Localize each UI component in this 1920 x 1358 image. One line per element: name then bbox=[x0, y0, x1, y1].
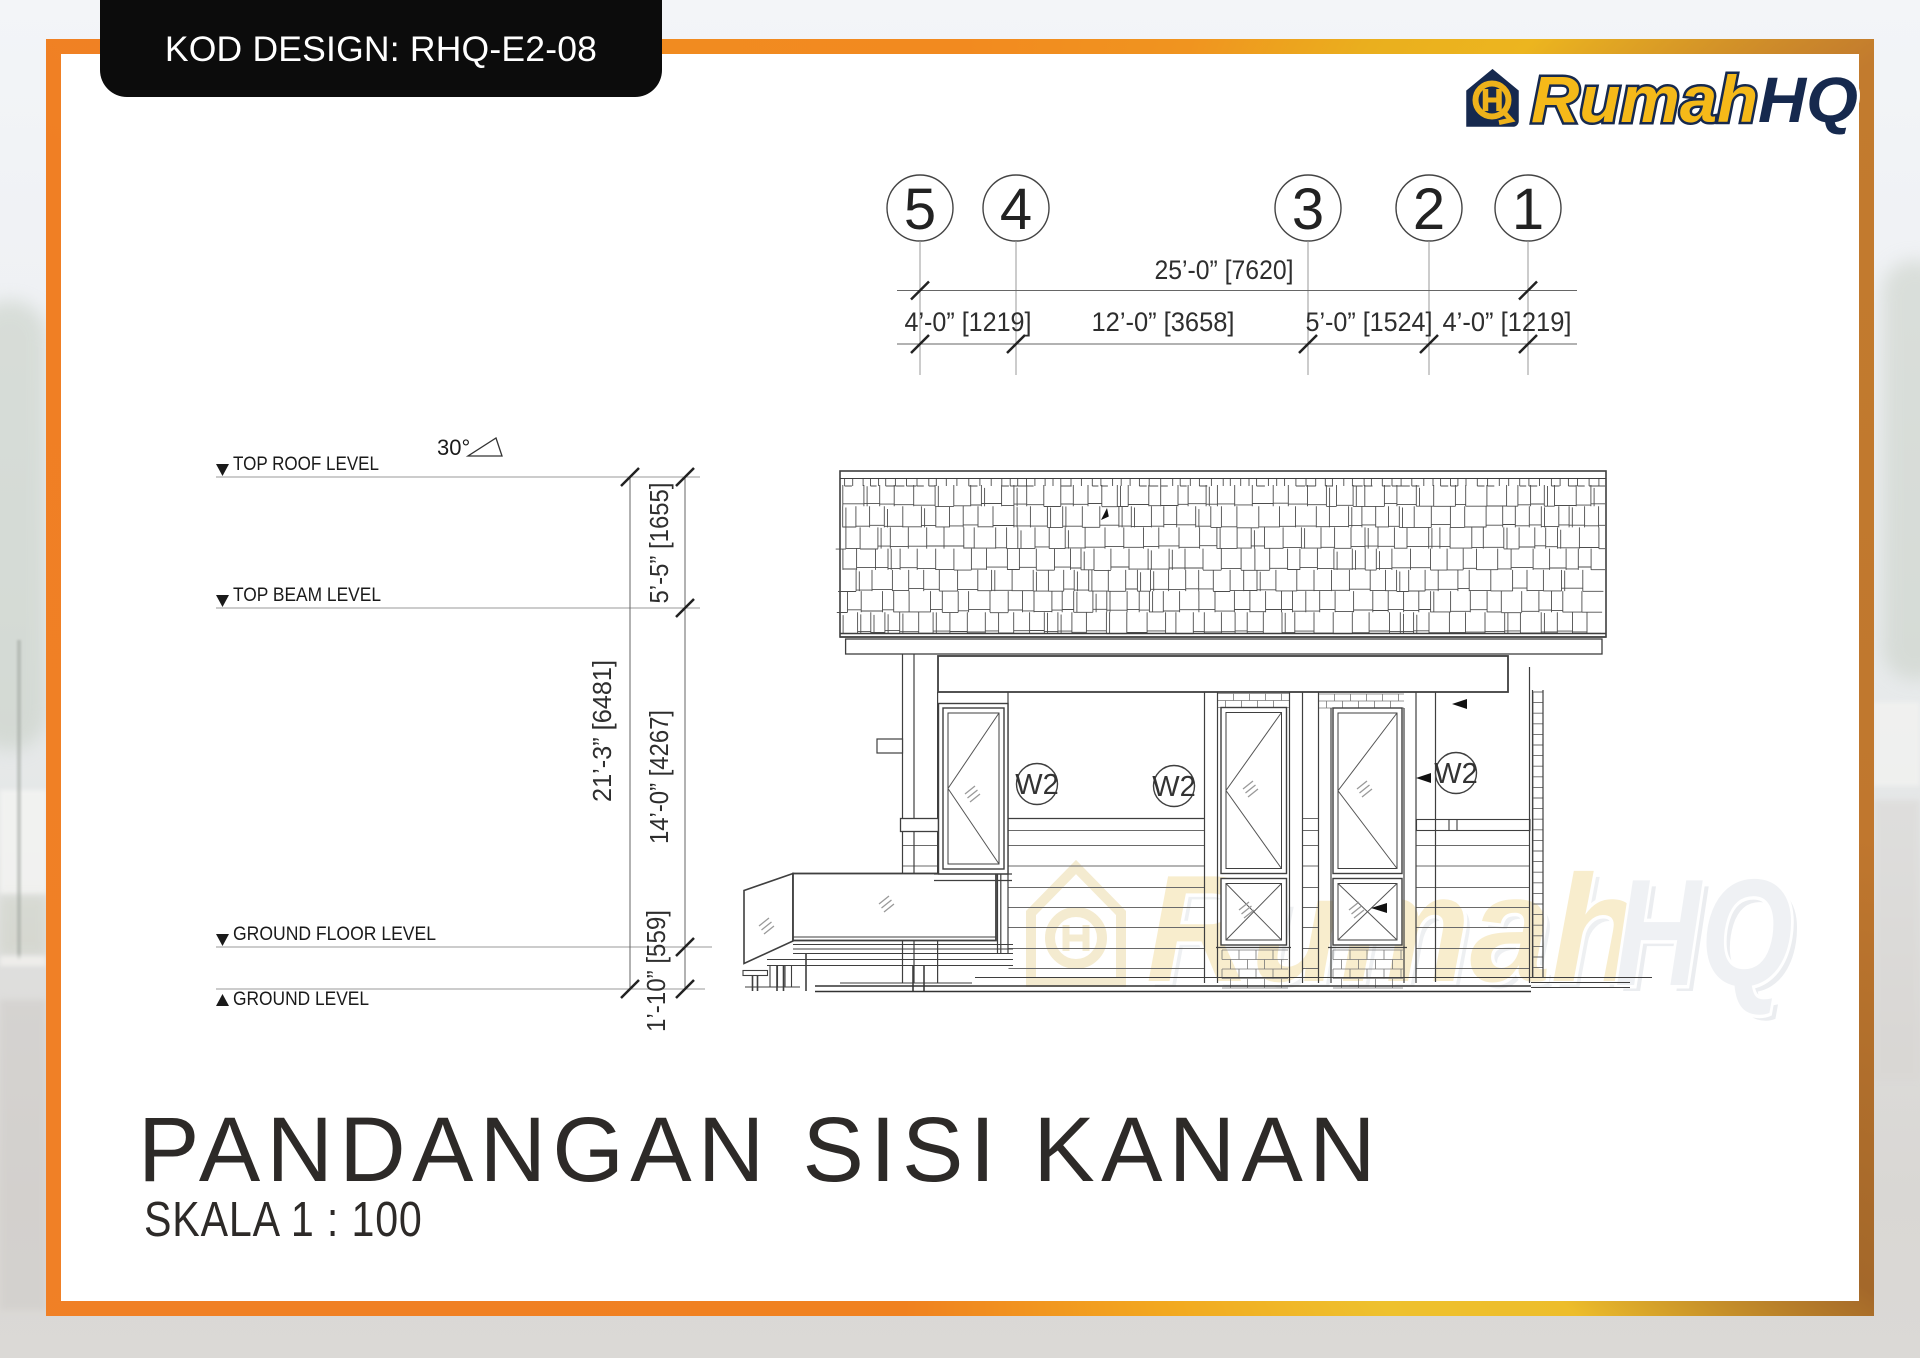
svg-text:5’-5” [1655]: 5’-5” [1655] bbox=[644, 483, 674, 604]
svg-text:W2: W2 bbox=[1015, 769, 1059, 801]
svg-text:GROUND LEVEL: GROUND LEVEL bbox=[233, 989, 369, 1010]
svg-text:21’-3” [6481]: 21’-3” [6481] bbox=[587, 660, 617, 802]
svg-text:TOP ROOF LEVEL: TOP ROOF LEVEL bbox=[233, 454, 379, 475]
svg-text:5: 5 bbox=[904, 177, 936, 242]
svg-text:4’-0” [1219]: 4’-0” [1219] bbox=[905, 307, 1032, 337]
svg-text:5’-0” [1524]: 5’-0” [1524] bbox=[1306, 307, 1433, 337]
svg-text:W2: W2 bbox=[1152, 771, 1196, 803]
svg-text:4’-0” [1219]: 4’-0” [1219] bbox=[1443, 307, 1572, 337]
svg-text:HQ: HQ bbox=[1758, 64, 1858, 136]
svg-text:GROUND FLOOR LEVEL: GROUND FLOOR LEVEL bbox=[233, 924, 436, 945]
svg-text:25’-0” [7620]: 25’-0” [7620] bbox=[1155, 255, 1294, 285]
svg-text:1: 1 bbox=[1512, 177, 1544, 242]
svg-text:2: 2 bbox=[1413, 177, 1445, 242]
svg-text:HQ: HQ bbox=[1615, 848, 1793, 1018]
svg-text:4: 4 bbox=[1000, 177, 1032, 242]
svg-text:TOP BEAM LEVEL: TOP BEAM LEVEL bbox=[233, 585, 381, 606]
svg-text:1’-10” [559]: 1’-10” [559] bbox=[641, 910, 671, 1032]
svg-text:Rumah: Rumah bbox=[1531, 62, 1758, 136]
svg-text:14’-0” [4267]: 14’-0” [4267] bbox=[644, 710, 674, 844]
svg-text:W2: W2 bbox=[1434, 758, 1478, 790]
svg-text:12’-0” [3658]: 12’-0” [3658] bbox=[1092, 307, 1235, 337]
svg-text:30°: 30° bbox=[437, 435, 470, 460]
svg-text:3: 3 bbox=[1292, 177, 1324, 242]
